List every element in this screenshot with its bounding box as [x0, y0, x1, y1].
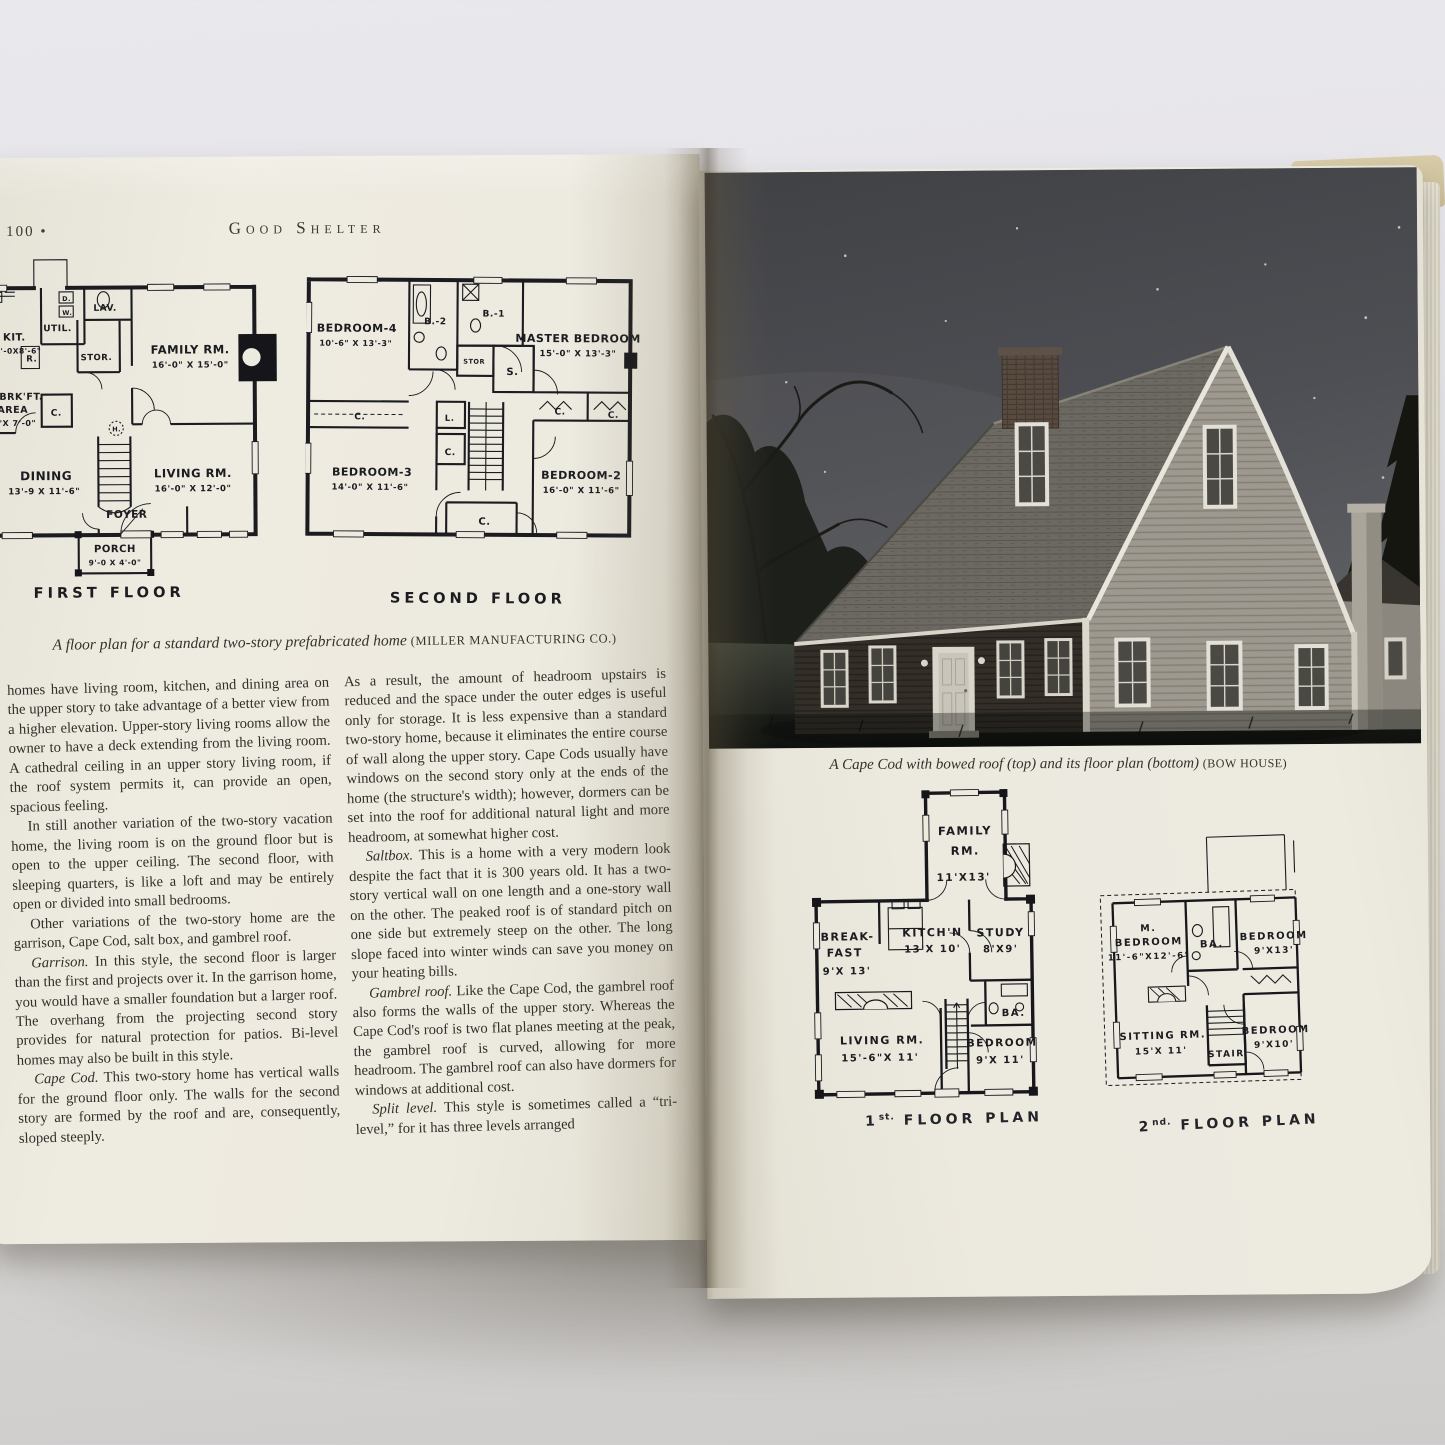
plan1-title: 1st. FLOOR PLAN: [824, 1108, 1084, 1131]
paragraph-lead: Garrison.: [31, 954, 89, 971]
label-family-dims: 16'-0" X 15'-0": [152, 360, 229, 370]
label-stor: STOR.: [81, 353, 113, 363]
label-rp2-sitting-dims: 15'X 11': [1135, 1046, 1188, 1058]
photo-caption-text: A Cape Cod with bowed roof (top) and its…: [829, 755, 1199, 773]
label-closet5: C.: [478, 517, 490, 528]
label-rp2-m: M.: [1140, 923, 1156, 935]
label-brkft-dims: 8'X 7'-0": [0, 419, 36, 428]
label-bedroom3: BEDROOM-3: [332, 465, 412, 478]
page-number: 100 •: [6, 224, 48, 241]
paragraph: Garrison. In this style, the second floo…: [14, 946, 339, 1071]
label-rp-family: FAMILY: [938, 823, 992, 838]
label-bedroom2: BEDROOM-2: [541, 469, 621, 482]
paragraph: Cape Cod. This two-story home has vertic…: [17, 1063, 341, 1149]
plan1-title-num: 1: [865, 1113, 879, 1129]
paragraph-lead: Cape Cod.: [34, 1070, 99, 1088]
label-heater: H.: [112, 425, 121, 433]
paragraph-lead: Saltbox.: [365, 848, 413, 865]
label-rp-bedroom: BEDROOM: [967, 1037, 1038, 1050]
paragraph-text: In still another variation of the two-st…: [11, 811, 334, 913]
label-rp-breakfast1: BREAK-: [820, 930, 874, 944]
label-rp2-mbedroom-dims: 11'-6"X12'-6": [1108, 951, 1191, 964]
label-rp-family-dims: 11'X13': [936, 871, 990, 884]
label-stor2: STOR: [463, 358, 485, 366]
label-closet3: C.: [554, 407, 565, 417]
plan1-title-sup: st.: [879, 1112, 895, 1122]
second-floor-linework: [304, 276, 637, 539]
left-page: 100 • Good Shelter: [0, 154, 706, 1244]
label-rp-living-dims: 15'-6"X 11': [841, 1052, 919, 1064]
label-linen: L.: [445, 414, 455, 424]
page-number-value: 100: [6, 224, 35, 240]
label-lav: LAV.: [93, 304, 116, 314]
plan2-title-sup: nd.: [1152, 1117, 1172, 1128]
first-floor-title: FIRST FLOOR: [34, 584, 185, 602]
paragraph: Gambrel roof. Like the Cape Cod, the gam…: [352, 976, 677, 1101]
label-dining: DINING: [20, 469, 72, 483]
plan-caption-text: A floor plan for a standard two-story pr…: [53, 632, 407, 654]
photo-scene: [705, 167, 1422, 749]
label-living-rm: LIVING RM.: [154, 466, 232, 480]
house-photograph: [705, 167, 1422, 749]
body-text-columns: homes have living room, kitchen, and din…: [7, 665, 679, 1149]
label-bedroom4: BEDROOM-4: [317, 322, 397, 335]
label-bedroom3-dims: 14'-0" X 11'-6": [332, 483, 409, 493]
second-floor-title: SECOND FLOOR: [390, 590, 566, 608]
label-bedroom2-dims: 16'-0" X 11'-6": [543, 486, 620, 496]
label-rp2-bedroom-b-dims: 9'X10': [1254, 1040, 1295, 1051]
photo-caption: A Cape Cod with bowed roof (top) and its…: [733, 755, 1383, 775]
label-rp-bath: BA.: [1002, 1008, 1026, 1019]
running-head: Good Shelter: [142, 217, 472, 239]
label-rp-family-rm: RM.: [951, 843, 980, 857]
label-range: R.: [26, 354, 37, 364]
label-rp-kitchen: KITCH'N: [902, 926, 963, 940]
first-floor-linework: [0, 258, 278, 577]
label-rp-bedroom-dims: 9'X 11': [976, 1055, 1025, 1067]
paragraph: In still another variation of the two-st…: [10, 810, 334, 916]
label-kit: KIT.: [3, 332, 26, 343]
paragraph: As a result, the amount of headroom upst…: [344, 665, 670, 849]
label-bath1: B.-1: [482, 309, 504, 319]
paragraph-lead: Split level.: [372, 1100, 437, 1118]
plan-caption: A floor plan for a standard two-story pr…: [3, 629, 667, 656]
label-brkft: BRK'FT.: [0, 392, 43, 403]
page-number-bullet: •: [40, 224, 47, 240]
label-brkft-area: AREA: [0, 405, 28, 416]
label-living-dims: 16'-0" X 12'-0": [155, 484, 232, 494]
label-rp-breakfast2: FAST: [827, 946, 863, 960]
house-photo-art: [705, 167, 1422, 749]
label-family-rm: FAMILY RM.: [151, 342, 230, 356]
label-foyer: FOYER: [106, 509, 147, 521]
label-porch: PORCH: [94, 544, 136, 555]
paragraph-text: As a result, the amount of headroom upst…: [344, 666, 670, 846]
label-master-dims: 15'-0" X 13'-3": [540, 349, 617, 359]
paragraph-text: homes have living room, kitchen, and din…: [7, 675, 332, 816]
label-util: UTIL.: [43, 324, 72, 334]
label-bath2: B.-2: [424, 317, 446, 327]
label-rp2-bath: BA.: [1200, 939, 1224, 951]
paragraph-text: Other variations of the two-story home a…: [14, 908, 336, 952]
label-rp-study: STUDY: [976, 926, 1024, 940]
second-floor-plan: BEDROOM-4 10'-6" X 13'-3" B.-2 B.-1 MAST…: [304, 260, 654, 614]
label-closet: C.: [51, 409, 62, 419]
paragraph: homes have living room, kitchen, and din…: [7, 674, 332, 819]
label-bedroom4-dims: 10'-6" X 13'-3": [319, 339, 392, 348]
plan-caption-credit: (MILLER MANUFACTURING CO.): [411, 631, 617, 648]
paragraph: Saltbox. This is a home with a very mode…: [348, 840, 673, 985]
label-rp2-stair: STAIR: [1208, 1049, 1245, 1060]
label-rp-living: LIVING RM.: [840, 1033, 925, 1047]
label-dining-dims: 13'-9 X 11'-6": [8, 487, 80, 497]
cape-cod-first-floor-plan: FAMILY RM. 11'X13' BREAK- FAST 9'X 13' K…: [802, 779, 1099, 1108]
label-rp2-bedroom-a-dims: 9'X13': [1254, 945, 1295, 956]
label-rp-kitchen-dims: 13'X 10': [904, 944, 961, 956]
label-closet4: C.: [608, 411, 619, 421]
photo-caption-credit: (BOW HOUSE): [1203, 756, 1287, 770]
cape-cod-second-floor-plan: M. BEDROOM 11'-6"X12'-6" BA. BEDROOM 9'X…: [1088, 831, 1359, 1124]
label-rp2-bedroom-b: BEDROOM: [1242, 1024, 1310, 1037]
plan1-title-rest: FLOOR PLAN: [895, 1109, 1043, 1129]
label-rp-breakfast-dims: 9'X 13': [823, 966, 872, 978]
label-rp2-mbedroom: BEDROOM: [1115, 936, 1183, 949]
gable-lower-windows: [1114, 636, 1329, 712]
label-master-bedroom: MASTER BEDROOM: [515, 332, 640, 346]
label-washer: W.: [62, 309, 72, 317]
paragraph: Split level. This style is sometimes cal…: [355, 1093, 678, 1140]
label-rp-study-dims: 8'X9': [983, 944, 1018, 956]
label-closet1: C.: [354, 412, 365, 422]
paragraph-lead: Gambrel roof.: [369, 983, 452, 1001]
label-dryer: D.: [62, 295, 71, 303]
label-rp2-bedroom-a: BEDROOM: [1240, 930, 1308, 943]
left-column: homes have living room, kitchen, and din…: [7, 674, 341, 1150]
label-closet2: C.: [445, 448, 456, 458]
right-column: As a result, the amount of headroom upst…: [344, 665, 678, 1141]
first-floor-plan: KIT. 10'-0X8'-6" UTIL. D. W. LAV. STOR. …: [0, 252, 292, 606]
label-s-closet: S.: [506, 367, 518, 378]
plan2-title-num: 2: [1138, 1119, 1152, 1136]
label-rp2-sitting: SITTING RM.: [1119, 1029, 1206, 1043]
right-page: A Cape Cod with bowed roof (top) and its…: [699, 165, 1432, 1299]
label-porch-dims: 9'-0 X 4'-0": [89, 558, 142, 567]
